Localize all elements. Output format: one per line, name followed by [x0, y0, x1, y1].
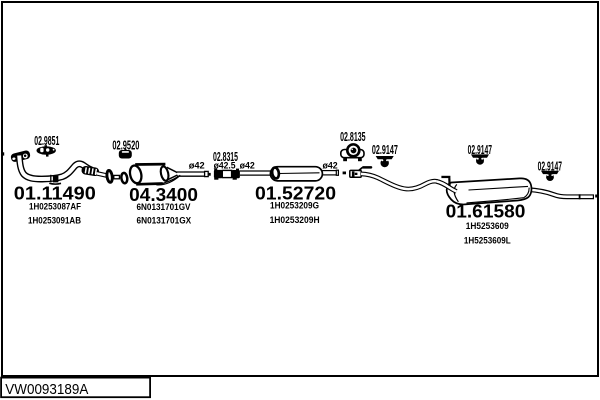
svg-text:ø42.5: ø42.5: [214, 160, 237, 171]
svg-text:1H5253609: 1H5253609: [466, 221, 509, 232]
svg-text:02.8135: 02.8135: [340, 129, 366, 144]
svg-text:01.61580: 01.61580: [446, 201, 526, 222]
svg-text:1H5253609L: 1H5253609L: [464, 236, 511, 247]
svg-text:1H0253087AF: 1H0253087AF: [29, 202, 81, 213]
svg-text:ø42: ø42: [240, 160, 255, 171]
svg-text:ø42: ø42: [189, 161, 205, 172]
svg-text:6N0131701GV: 6N0131701GV: [137, 202, 192, 213]
svg-text:02.9147: 02.9147: [372, 142, 398, 157]
svg-text:02.9520: 02.9520: [112, 137, 139, 152]
svg-text:01.11490: 01.11490: [14, 183, 96, 204]
svg-text:6N0131701GX: 6N0131701GX: [137, 216, 192, 227]
svg-text:1H0253209H: 1H0253209H: [270, 215, 320, 226]
svg-text:VW0093189A: VW0093189A: [5, 382, 88, 398]
svg-text:1H0253209G: 1H0253209G: [270, 201, 319, 212]
svg-text:ø42: ø42: [323, 160, 338, 171]
svg-text:02.9147: 02.9147: [538, 159, 562, 174]
svg-text:1H0253091AB: 1H0253091AB: [28, 215, 81, 226]
svg-text:02.9147: 02.9147: [468, 142, 492, 157]
svg-text:02.9851: 02.9851: [34, 133, 59, 148]
